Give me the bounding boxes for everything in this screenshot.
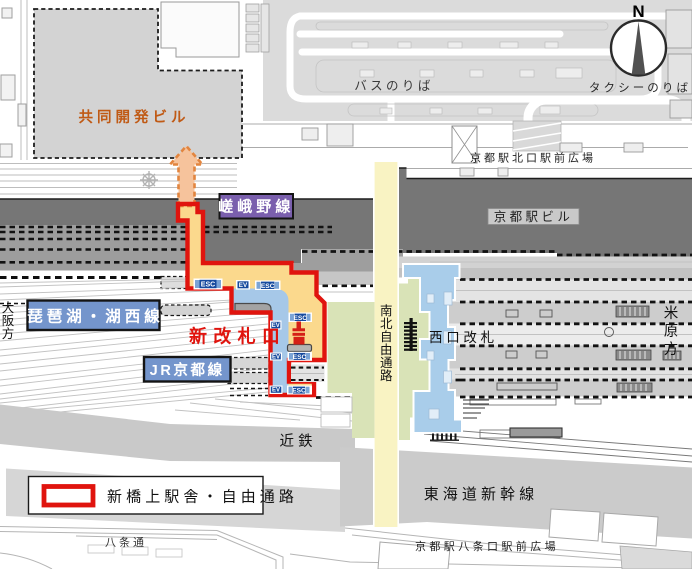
svg-text:ESC: ESC	[294, 315, 308, 322]
svg-text:東海道新幹線: 東海道新幹線	[424, 485, 539, 503]
svg-text:新橋上駅舎・自由通路: 新橋上駅舎・自由通路	[107, 489, 298, 506]
svg-text:ESC: ESC	[292, 388, 306, 395]
svg-text:バスのりば: バスのりば	[354, 79, 434, 93]
svg-text:EV: EV	[272, 388, 280, 394]
svg-text:南北自由通路: 南北自由通路	[380, 303, 393, 383]
svg-text:米原方: 米原方	[664, 305, 679, 358]
svg-text:八条通: 八条通	[105, 535, 147, 549]
svg-text:JR京都線: JR京都線	[150, 361, 225, 379]
svg-text:新改札口: 新改札口	[189, 326, 286, 347]
svg-text:嵯峨野線: 嵯峨野線	[218, 198, 294, 216]
svg-text:ESC: ESC	[261, 283, 275, 290]
svg-text:タクシーのりば: タクシーのりば	[589, 82, 691, 95]
svg-text:ESC: ESC	[293, 354, 307, 361]
svg-text:共同開発ビル: 共同開発ビル	[79, 108, 190, 126]
svg-text:EV: EV	[272, 354, 280, 360]
svg-text:近鉄: 近鉄	[280, 433, 317, 450]
svg-text:京都駅八条口駅前広場: 京都駅八条口駅前広場	[415, 539, 559, 553]
svg-text:EV: EV	[239, 282, 248, 289]
svg-text:京都駅ビル: 京都駅ビル	[494, 210, 574, 224]
svg-text:大阪方: 大阪方	[2, 301, 15, 341]
svg-text:ESC: ESC	[201, 282, 215, 289]
svg-text:京都駅北口駅前広場: 京都駅北口駅前広場	[470, 151, 596, 165]
svg-text:N: N	[632, 2, 644, 21]
svg-text:西口改札: 西口改札	[429, 330, 498, 345]
svg-text:琵琶湖・湖西線: 琵琶湖・湖西線	[27, 307, 164, 326]
